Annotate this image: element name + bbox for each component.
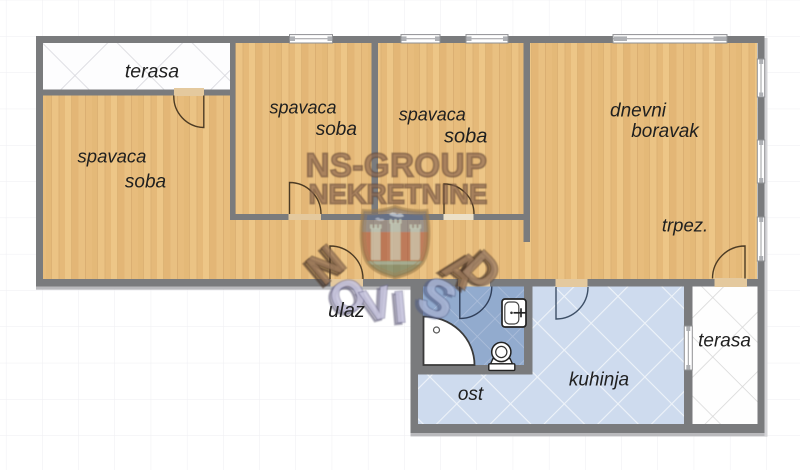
- svg-text:dnevni: dnevni: [610, 101, 667, 122]
- svg-text:spavaca: spavaca: [78, 146, 147, 167]
- svg-text:NEKRETNINE: NEKRETNINE: [309, 179, 488, 210]
- svg-text:boravak: boravak: [631, 121, 700, 142]
- svg-text:terasa: terasa: [698, 331, 751, 352]
- svg-text:soba: soba: [125, 172, 166, 193]
- svg-text:kuhinja: kuhinja: [569, 370, 629, 391]
- svg-text:soba: soba: [316, 119, 357, 140]
- svg-text:ost: ost: [458, 384, 484, 405]
- svg-text:spavaca: spavaca: [399, 105, 466, 125]
- svg-text:ulaz: ulaz: [328, 300, 365, 322]
- svg-text:terasa: terasa: [125, 61, 179, 83]
- svg-text:trpez.: trpez.: [662, 215, 708, 236]
- svg-text:soba: soba: [444, 126, 487, 148]
- svg-text:spavaca: spavaca: [269, 98, 336, 118]
